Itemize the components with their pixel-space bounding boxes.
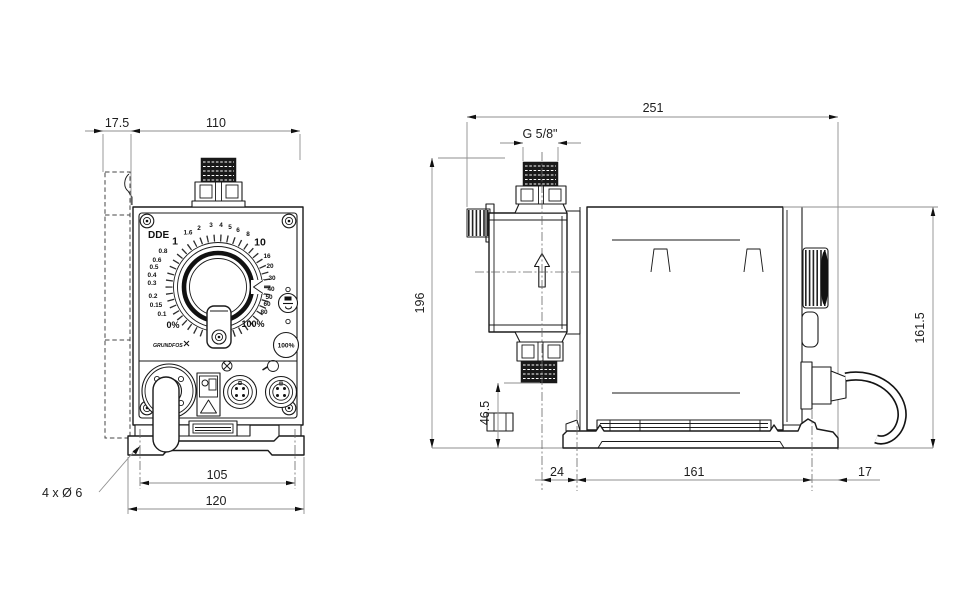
dim-hole-rear: 17 (858, 465, 872, 479)
dial-label: 10 (254, 237, 266, 249)
prime-button: 100% (274, 333, 299, 358)
discharge-fitting-front (192, 158, 245, 207)
dimensional-drawing: 1 1.6 2 3 4 5 6 8 10 16 20 30 40 50 60 8… (0, 0, 976, 600)
dial-label: 1.6 (184, 230, 193, 237)
rear-cover (783, 207, 802, 425)
rear-dial-knob (803, 248, 829, 308)
dial-label: 6 (236, 227, 240, 234)
units-button (279, 294, 298, 313)
m12-connector (266, 377, 297, 408)
dial-min-label: 0% (166, 320, 179, 330)
dim-thread: G 5/8" (522, 127, 557, 141)
logo-text: GRUNDFOS (153, 343, 183, 349)
dial-label: 50 (265, 294, 273, 301)
warning-label (197, 373, 220, 416)
dial-label: 0.8 (159, 248, 168, 255)
dial-label: 0.5 (150, 264, 159, 271)
dial-label: 16 (263, 253, 271, 260)
dial-label: 80 (260, 309, 268, 316)
dial-label: 1 (172, 236, 178, 248)
dial-label: 0.3 (148, 280, 157, 287)
dial-max-label: 100% (241, 319, 264, 329)
dim-outlet-height: 46.5 (478, 401, 492, 425)
dial-label: 0.4 (148, 272, 157, 279)
motor-body (580, 207, 783, 430)
dial-label: 4 (219, 222, 223, 229)
thread-bottom-side (521, 361, 557, 383)
mounting-holes-note: 4 x Ø 6 (42, 486, 82, 500)
l-h-fraction-icon (285, 297, 292, 301)
side-view: 251 G 5/8" 196 161.5 46.5 (413, 101, 938, 491)
dim-hole-spacing-side: 161 (684, 465, 705, 479)
dim-depth: 251 (643, 101, 664, 115)
mounting-clamp (189, 421, 237, 436)
dial-label: 0.1 (158, 311, 167, 318)
cable-gland (801, 362, 846, 409)
dial-label: 3 (209, 222, 213, 229)
dim-hole-front: 24 (550, 465, 564, 479)
drain-tube (153, 377, 179, 452)
dial-label: 20 (266, 263, 274, 270)
dim-body-height: 161.5 (913, 312, 927, 343)
dim-wall-offset: 17.5 (105, 116, 129, 130)
rear-button-profile (802, 312, 818, 347)
prime-button-label: 100% (278, 343, 295, 350)
dial-label: 2 (197, 225, 201, 232)
dial-label: 0.6 (153, 257, 162, 264)
model-label: DDE (148, 230, 169, 241)
dial-label: 40 (267, 286, 275, 293)
drawing-svg: 1 1.6 2 3 4 5 6 8 10 16 20 30 40 50 60 8… (0, 0, 976, 600)
dim-base-width: 120 (206, 494, 227, 508)
dim-height: 196 (413, 293, 427, 314)
m12-connector (224, 376, 257, 409)
dial-label: 60 (263, 301, 271, 308)
knob-edge (821, 251, 829, 305)
dim-hole-spacing-front: 105 (207, 468, 228, 482)
dial-label: 0.2 (149, 293, 158, 300)
power-cable (846, 376, 903, 440)
dial-label: 5 (228, 224, 232, 231)
dial-label: 0.15 (150, 302, 163, 309)
dim-width: 110 (206, 116, 226, 130)
dial-label: 30 (268, 275, 276, 282)
front-view: 1 1.6 2 3 4 5 6 8 10 16 20 30 40 50 60 8… (42, 116, 304, 514)
dial-label: 8 (246, 231, 250, 238)
wall-bracket (105, 172, 132, 438)
